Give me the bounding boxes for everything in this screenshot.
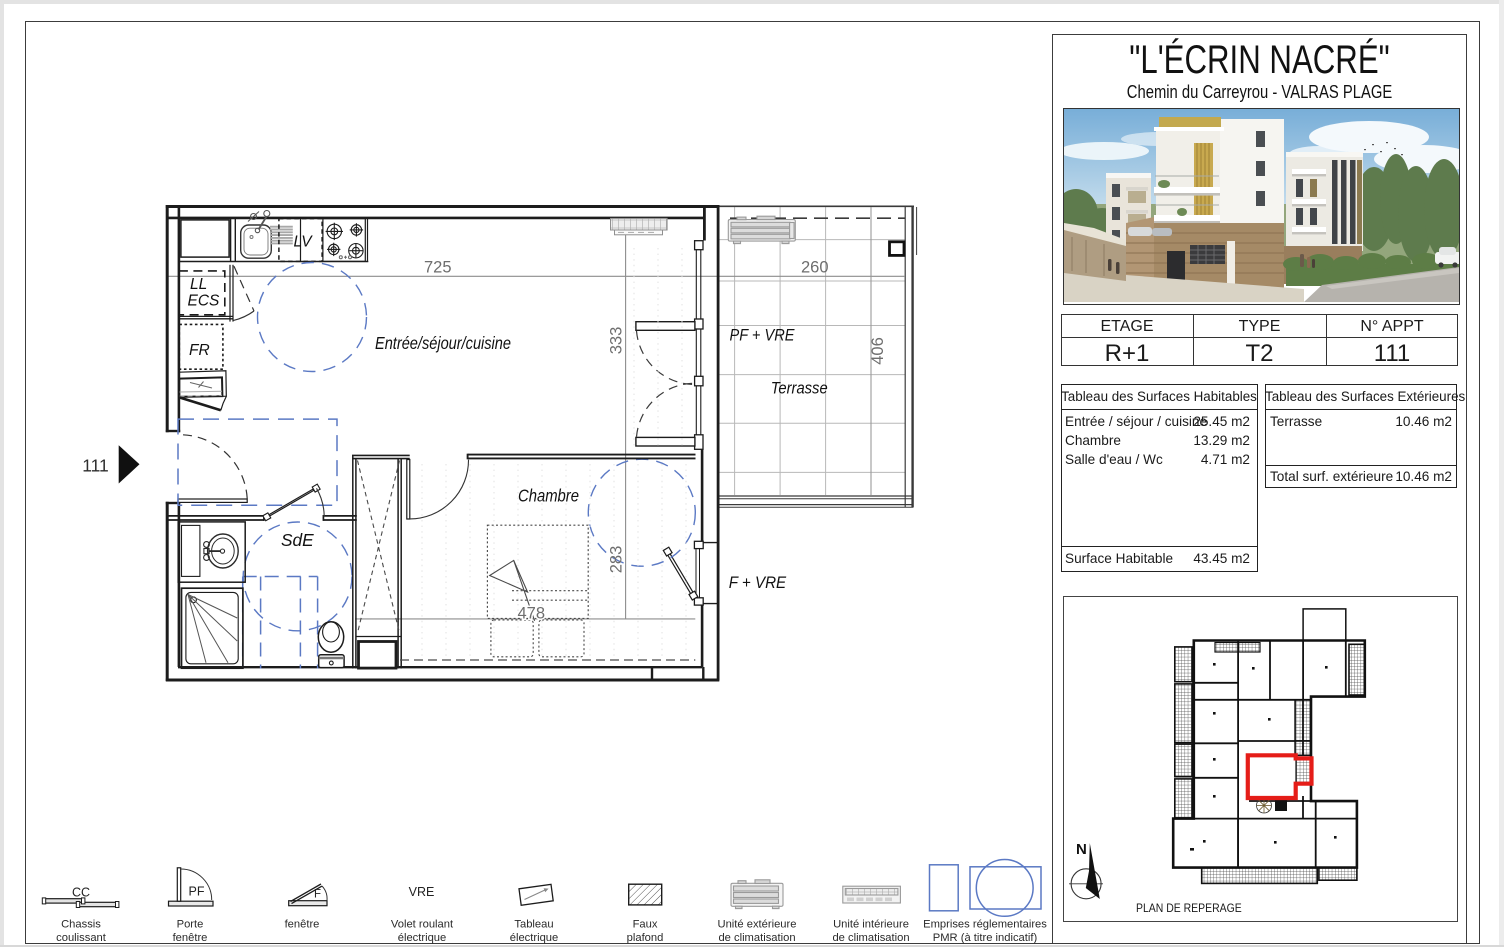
svg-text:Volet roulant: Volet roulant — [391, 919, 454, 931]
svg-text:coulissant: coulissant — [56, 932, 107, 944]
svg-text:333: 333 — [608, 327, 626, 355]
svg-text:LV: LV — [294, 234, 314, 251]
svg-text:F + VRE: F + VRE — [729, 573, 787, 592]
svg-text:Terrasse: Terrasse — [771, 379, 828, 398]
svg-text:fenêtre: fenêtre — [173, 932, 208, 944]
svg-text:478: 478 — [518, 605, 546, 623]
svg-text:283: 283 — [608, 546, 626, 574]
svg-text:Emprises réglementaires: Emprises réglementaires — [923, 919, 1047, 931]
svg-text:PF: PF — [189, 885, 205, 899]
svg-text:fenêtre: fenêtre — [285, 919, 320, 931]
svg-text:260: 260 — [801, 259, 829, 277]
svg-text:406: 406 — [869, 337, 887, 365]
svg-text:de climatisation: de climatisation — [718, 932, 795, 944]
svg-text:F: F — [314, 889, 321, 901]
svg-text:plafond: plafond — [627, 932, 664, 944]
svg-text:PF + VRE: PF + VRE — [730, 326, 796, 345]
svg-text:Porte: Porte — [177, 919, 204, 931]
svg-text:électrique: électrique — [398, 932, 447, 944]
svg-text:Tableau: Tableau — [514, 919, 553, 931]
svg-text:Unité extérieure: Unité extérieure — [718, 919, 797, 931]
svg-text:111: 111 — [82, 456, 109, 476]
svg-text:CC: CC — [72, 886, 90, 900]
svg-text:Chambre: Chambre — [518, 486, 579, 506]
svg-text:Chassis: Chassis — [61, 919, 101, 931]
svg-text:ECS: ECS — [188, 293, 221, 310]
svg-text:Faux: Faux — [633, 919, 658, 931]
svg-text:PMR (à titre indicatif): PMR (à titre indicatif) — [933, 932, 1038, 944]
svg-text:725: 725 — [424, 259, 452, 277]
svg-text:LL: LL — [190, 276, 207, 293]
svg-text:électrique: électrique — [510, 932, 559, 944]
svg-text:FR: FR — [189, 342, 210, 359]
svg-text:VRE: VRE — [409, 885, 435, 899]
svg-text:N: N — [1076, 841, 1087, 858]
svg-text:Unité intérieure: Unité intérieure — [833, 919, 909, 931]
svg-text:SdE: SdE — [281, 530, 314, 550]
svg-text:de climatisation: de climatisation — [832, 932, 909, 944]
svg-text:Entrée/séjour/cuisine: Entrée/séjour/cuisine — [375, 333, 511, 353]
